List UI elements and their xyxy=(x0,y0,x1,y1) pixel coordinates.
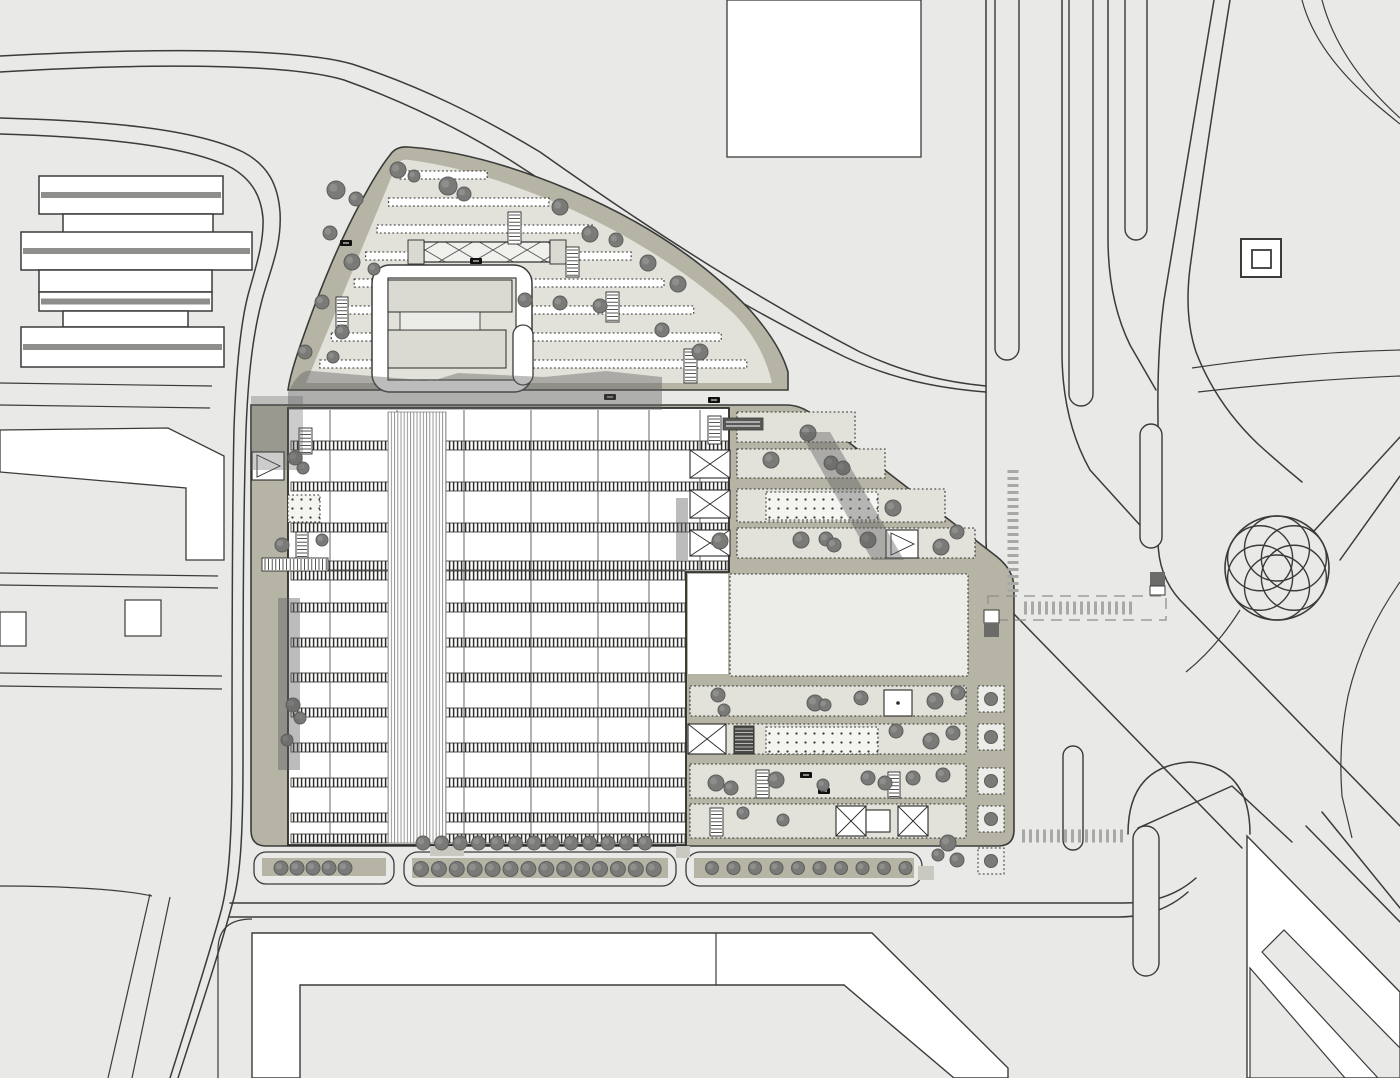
tree-highlight xyxy=(726,783,732,789)
tree-highlight xyxy=(729,863,735,869)
stair-ladder xyxy=(508,212,521,244)
track-band xyxy=(291,708,685,717)
tree-highlight xyxy=(370,265,375,270)
station-north-shadow xyxy=(288,371,662,410)
tree-highlight xyxy=(952,855,958,861)
tree-highlight xyxy=(694,346,701,353)
tree-highlight xyxy=(880,778,886,784)
track-band xyxy=(291,523,728,532)
tree-highlight xyxy=(938,770,944,776)
track-band xyxy=(291,441,728,450)
tree-highlight xyxy=(554,201,561,208)
tree-highlight xyxy=(300,347,306,353)
tree-highlight xyxy=(487,864,494,871)
tree-highlight xyxy=(584,838,590,844)
tree-highlight xyxy=(346,256,353,263)
track-band xyxy=(291,571,685,580)
dotted-plaza xyxy=(288,495,320,522)
tree-highlight xyxy=(455,838,461,844)
tree-highlight xyxy=(707,863,713,869)
tree-highlight xyxy=(594,864,601,871)
track-band xyxy=(291,482,728,491)
courtyard-slab xyxy=(388,280,512,312)
tree-highlight xyxy=(433,864,440,871)
tree-highlight xyxy=(318,536,323,541)
tree-highlight xyxy=(779,816,784,821)
tree-highlight xyxy=(901,863,907,869)
bar-stripe xyxy=(23,248,250,254)
tree-highlight xyxy=(935,541,942,548)
tree-highlight xyxy=(953,688,959,694)
bar-stripe xyxy=(41,192,221,198)
site-plan-canvas xyxy=(0,0,1400,1078)
tree-highlight xyxy=(410,172,415,177)
corner-square-inner xyxy=(1252,250,1271,268)
tree-highlight xyxy=(566,838,572,844)
tree-highlight xyxy=(418,838,424,844)
tree-highlight xyxy=(340,863,346,869)
tree-highlight xyxy=(529,838,535,844)
planter-tree xyxy=(985,693,998,706)
track-band xyxy=(291,673,685,682)
planter-tree xyxy=(985,813,998,826)
tree-highlight xyxy=(308,863,314,869)
tree-highlight xyxy=(351,194,357,200)
tree-highlight xyxy=(292,863,298,869)
tree-highlight xyxy=(555,298,561,304)
pavilion-end xyxy=(408,240,424,264)
east-plaza xyxy=(730,574,968,676)
median-island xyxy=(1140,424,1162,548)
tree-highlight xyxy=(621,838,627,844)
median-island xyxy=(1133,826,1159,976)
tree-highlight xyxy=(459,189,465,195)
tree-highlight xyxy=(714,535,721,542)
tree-highlight xyxy=(821,701,826,706)
tree-highlight xyxy=(858,863,864,869)
tree-highlight xyxy=(642,257,649,264)
residential-bar xyxy=(63,214,213,233)
sq-box xyxy=(866,810,890,832)
tree-highlight xyxy=(392,164,399,171)
tree-highlight xyxy=(720,706,725,711)
tree-highlight xyxy=(879,863,885,869)
tree-highlight xyxy=(887,502,894,509)
tree-highlight xyxy=(648,864,655,871)
median-island xyxy=(995,0,1019,360)
residential-bar xyxy=(63,311,188,327)
tree-highlight xyxy=(441,180,449,188)
bar-stripe xyxy=(23,344,222,350)
plaza-link xyxy=(688,574,728,674)
tree-highlight xyxy=(612,864,619,871)
east-edge-shadow xyxy=(676,498,688,560)
paving-connector xyxy=(676,846,690,858)
tree-highlight xyxy=(772,863,778,869)
track-band xyxy=(291,561,728,570)
tree-highlight xyxy=(952,527,958,533)
tree-highlight xyxy=(277,540,283,546)
tree-highlight xyxy=(672,278,679,285)
stair-ladder xyxy=(566,247,579,277)
tree-highlight xyxy=(473,838,479,844)
tree-highlight xyxy=(595,301,601,307)
paving-connector xyxy=(918,866,934,880)
courtyard-slab xyxy=(388,330,506,368)
tree-highlight xyxy=(559,864,566,871)
median-island xyxy=(1069,0,1093,406)
tree-highlight xyxy=(547,838,553,844)
tree-highlight xyxy=(415,864,422,871)
stop-shelter xyxy=(1150,572,1165,586)
track-band xyxy=(291,743,685,752)
tree-highlight xyxy=(611,235,617,241)
planter-tree xyxy=(985,775,998,788)
tree-highlight xyxy=(584,228,591,235)
hatched-pavilion xyxy=(424,242,550,262)
tree-highlight xyxy=(505,864,512,871)
white-square xyxy=(0,612,26,646)
tree-highlight xyxy=(765,454,772,461)
tree-highlight xyxy=(908,773,914,779)
tree-highlight xyxy=(317,297,323,303)
tree-highlight xyxy=(815,863,821,869)
tree-highlight xyxy=(739,809,744,814)
tree-highlight xyxy=(640,838,646,844)
white-square xyxy=(125,600,161,636)
dotted-plaza xyxy=(766,727,878,754)
tree-highlight xyxy=(929,695,936,702)
tree-highlight xyxy=(863,773,869,779)
tree-highlight xyxy=(576,864,583,871)
tree-highlight xyxy=(713,690,719,696)
track-band xyxy=(291,813,685,822)
tree-highlight xyxy=(856,693,862,699)
tree-highlight xyxy=(891,726,897,732)
tree-highlight xyxy=(836,863,842,869)
track-band xyxy=(291,638,685,647)
tree-highlight xyxy=(541,864,548,871)
tree-highlight xyxy=(948,728,954,734)
track-band xyxy=(291,603,685,612)
concourse-stripe-band xyxy=(388,412,446,843)
canopy-structure xyxy=(723,418,763,430)
north-white-block xyxy=(727,0,921,157)
tree-highlight xyxy=(750,863,756,869)
tree-highlight xyxy=(925,735,932,742)
tree-highlight xyxy=(793,863,799,869)
west-shadow xyxy=(278,598,300,770)
tree-highlight xyxy=(436,838,442,844)
path-strip xyxy=(377,225,594,233)
stair-ladder xyxy=(336,297,348,329)
tree-highlight xyxy=(329,184,337,192)
tree-highlight xyxy=(942,837,949,844)
median-island xyxy=(1125,0,1147,240)
west-corner-shadow xyxy=(251,396,303,470)
stop-shelter xyxy=(984,623,999,637)
tree-highlight xyxy=(325,228,331,234)
tree-highlight xyxy=(523,864,530,871)
tree-highlight xyxy=(934,851,939,856)
track-band xyxy=(291,778,685,787)
tree-highlight xyxy=(795,534,802,541)
tree-highlight xyxy=(324,863,330,869)
stop-shelter xyxy=(984,610,999,623)
dot xyxy=(896,701,900,705)
tree-highlight xyxy=(819,781,824,786)
tree-highlight xyxy=(630,864,637,871)
courtyard-link xyxy=(400,312,480,330)
tree-highlight xyxy=(492,838,498,844)
residential-bar xyxy=(39,270,212,292)
tree-highlight xyxy=(829,540,835,546)
stop-shelter xyxy=(1150,586,1165,595)
tree-highlight xyxy=(329,353,334,358)
planter-tree xyxy=(985,855,998,868)
tree-highlight xyxy=(469,864,476,871)
site-plan-drawing xyxy=(0,0,1400,1078)
tree-highlight xyxy=(276,863,282,869)
tree-highlight xyxy=(657,325,663,331)
tree-highlight xyxy=(520,295,526,301)
landscape-band xyxy=(737,449,885,478)
tree-highlight xyxy=(337,327,343,333)
planter-tree xyxy=(985,731,998,744)
tree-highlight xyxy=(710,777,717,784)
pavilion-end xyxy=(550,240,566,264)
tree-highlight xyxy=(603,838,609,844)
tree-highlight xyxy=(821,534,827,540)
tree-highlight xyxy=(451,864,458,871)
tree-highlight xyxy=(510,838,516,844)
tree-highlight xyxy=(770,774,777,781)
tree-highlight xyxy=(809,697,816,704)
bar-stripe xyxy=(41,299,210,305)
stair-ladder xyxy=(606,292,619,322)
